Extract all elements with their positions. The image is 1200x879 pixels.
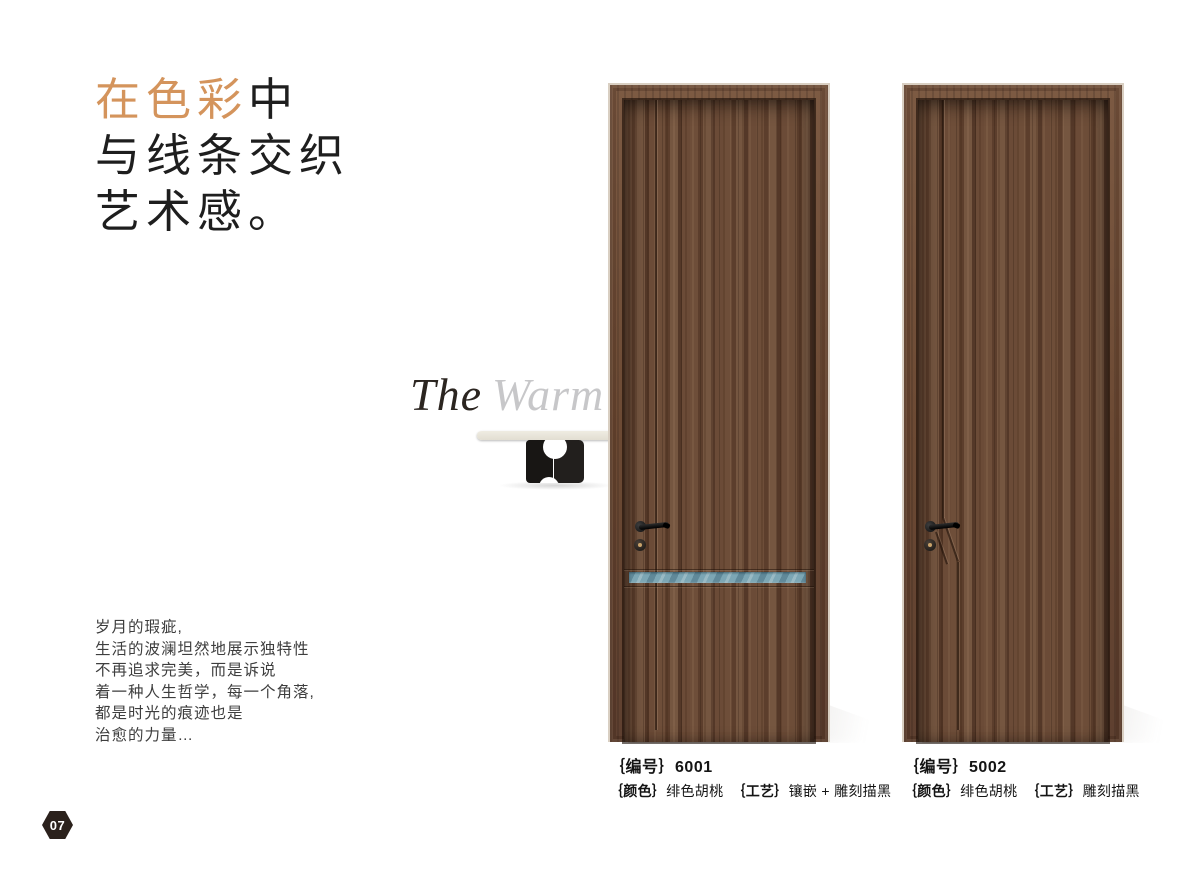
door-craft-label: ｛工艺｝ [1025,783,1082,799]
door-frame [902,83,1124,742]
door-product-5002: ｛编号｝5002 ｛颜色｝绯色胡桃｛工艺｝雕刻描黑 [902,83,1124,742]
collection-title: TheWarm [410,368,604,421]
title-line-1: 在色彩中 [95,72,350,128]
page-number: 07 [50,818,65,833]
door-color-label: ｛颜色｝ [609,783,666,799]
collection-title-the: The [410,369,482,420]
door-code-value: 6001 [675,759,713,776]
door-color-value: 绯色胡桃 [666,783,723,799]
side-table-top [477,431,616,440]
door-caption: ｛编号｝5002 ｛颜色｝绯色胡桃｛工艺｝雕刻描黑 [903,753,1200,801]
door-spec-line: ｛颜色｝绯色胡桃｛工艺｝镶嵌 + 雕刻描黑 [609,781,919,801]
door-slab [624,100,814,742]
door-lock [634,539,646,551]
description-line: 不再追求完美，而是诉说 [95,660,315,682]
door-code-line: ｛编号｝6001 [609,753,919,777]
door-color-value: 绯色胡桃 [960,783,1017,799]
page-number-badge: 07 [42,811,73,839]
collection-title-warm: Warm [492,369,604,420]
door-code-label: ｛编号｝ [609,759,675,776]
door-spec-line: ｛颜色｝绯色胡桃｛工艺｝雕刻描黑 [903,781,1200,801]
title-line-2: 与线条交织 [95,128,350,184]
description-line: 生活的波澜坦然地展示独特性 [95,639,315,661]
door-product-6001: ｛编号｝6001 ｛颜色｝绯色胡桃｛工艺｝镶嵌 + 雕刻描黑 [608,83,830,742]
side-table-base [520,440,592,483]
description-line: 岁月的瑕疵, [95,617,315,639]
door-craft-label: ｛工艺｝ [731,783,788,799]
door-craft-value: 镶嵌 + 雕刻描黑 [789,783,892,799]
description-line: 都是时光的痕迹也是 [95,703,315,725]
description-line: 治愈的力量… [95,725,315,747]
door-frame [608,83,830,742]
page-title: 在色彩中 与线条交织 艺术感。 [95,72,350,240]
door-code-value: 5002 [969,759,1007,776]
description-line: 着一种人生哲学，每一个角落, [95,682,315,704]
door-caption: ｛编号｝6001 ｛颜色｝绯色胡桃｛工艺｝镶嵌 + 雕刻描黑 [609,753,919,801]
door-groove-vertical [655,100,657,730]
door-craft-value: 雕刻描黑 [1083,783,1140,799]
door-groove-lower [957,562,959,730]
heading-rest: 中 [248,74,299,125]
door-lock [924,539,936,551]
door-color-label: ｛颜色｝ [903,783,960,799]
heading-accent: 在色彩 [95,74,248,125]
door-slab [918,100,1108,742]
door-groove-diagonal [935,532,948,565]
catalog-page: 在色彩中 与线条交织 艺术感。 TheWarm 岁月的瑕疵, 生活的波澜坦然地展… [0,0,1200,879]
title-line-3: 艺术感。 [95,184,350,240]
blue-inlay-strip [629,572,806,583]
description-text: 岁月的瑕疵, 生活的波澜坦然地展示独特性 不再追求完美，而是诉说 着一种人生哲学… [95,617,315,746]
door-code-label: ｛编号｝ [903,759,969,776]
door-groove-upper [942,100,944,518]
inlay-groove-top [624,569,814,570]
door-code-line: ｛编号｝5002 [903,753,1200,777]
inlay-groove-bottom [624,586,814,587]
